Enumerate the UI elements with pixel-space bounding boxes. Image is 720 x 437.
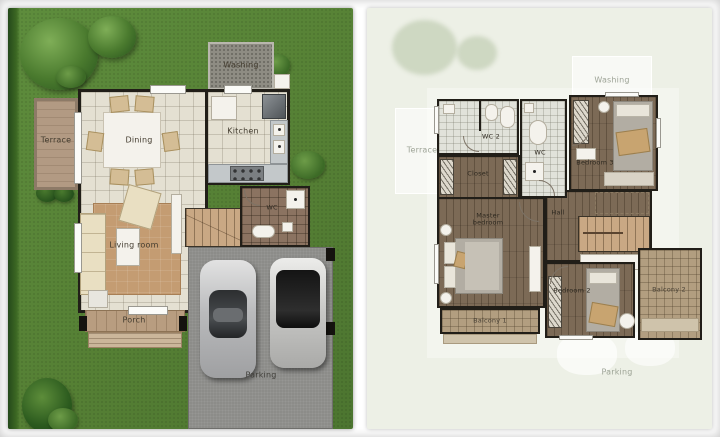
stairs-diagonal bbox=[185, 208, 241, 247]
sink-drain bbox=[278, 145, 281, 148]
stair-void bbox=[595, 192, 649, 214]
washing-label: Washing bbox=[223, 60, 258, 69]
master-side-table bbox=[440, 224, 452, 236]
master-side-table bbox=[440, 292, 452, 304]
kitchen-label: Kitchen bbox=[227, 126, 258, 135]
bush bbox=[56, 66, 86, 88]
living-room-label: Living room bbox=[109, 240, 158, 249]
balcony2-strip bbox=[641, 318, 699, 332]
window bbox=[150, 85, 186, 94]
back-step bbox=[274, 74, 290, 89]
wc-2f-label: WC bbox=[534, 149, 545, 156]
window bbox=[74, 223, 82, 273]
window bbox=[224, 85, 252, 94]
balcony1-steps bbox=[443, 334, 537, 344]
bedroom3-label: Bedroom 3 bbox=[576, 159, 613, 166]
car-silver-roofline bbox=[213, 308, 243, 322]
closet-wardrobe bbox=[440, 159, 454, 195]
window bbox=[434, 106, 439, 134]
parking-label: Parking bbox=[245, 370, 276, 379]
balcony1-label: Balcony 1 bbox=[473, 317, 507, 324]
chair bbox=[162, 131, 180, 152]
bedroom2-table bbox=[619, 313, 635, 329]
wc-label: WC bbox=[266, 204, 277, 211]
wc2-divider bbox=[479, 99, 481, 131]
master-label: Master bedroom bbox=[473, 213, 503, 228]
floorplan-image: Washing Terrace Kitchen Dining bbox=[0, 0, 720, 437]
chair bbox=[134, 168, 154, 186]
master-label-line2: bedroom bbox=[473, 219, 503, 227]
porch-steps bbox=[88, 332, 182, 348]
second-floor-plan: Washing Terrace Parking Hall WC 2 WC bbox=[367, 8, 712, 429]
chair bbox=[134, 95, 154, 113]
ghost-terrace-label: Terrace bbox=[407, 145, 438, 154]
ghost-tree bbox=[457, 36, 497, 70]
balcony2-label: Balcony 2 bbox=[652, 286, 686, 293]
closet-label: Closet bbox=[467, 170, 488, 177]
toilet bbox=[252, 225, 275, 238]
wc-drain bbox=[533, 170, 536, 173]
chair bbox=[109, 95, 130, 113]
wc2-basin bbox=[443, 104, 455, 114]
porch-label: Porch bbox=[122, 315, 145, 324]
window bbox=[128, 306, 168, 315]
closet-wardrobe bbox=[503, 159, 517, 195]
sink-drain bbox=[278, 128, 281, 131]
stove bbox=[230, 166, 264, 181]
window bbox=[74, 112, 82, 184]
master-sheet bbox=[465, 242, 499, 290]
window bbox=[559, 335, 593, 340]
chair bbox=[86, 131, 104, 152]
wc-basin bbox=[524, 103, 534, 113]
kitchen-island bbox=[211, 96, 237, 120]
ghost-washing-label: Washing bbox=[594, 75, 629, 84]
hall-label: Hall bbox=[551, 209, 564, 216]
fridge bbox=[262, 94, 286, 119]
car-black-top-glass bbox=[276, 270, 320, 328]
bedroom2-label: Bedroom 2 bbox=[553, 287, 590, 294]
stairs-up bbox=[578, 216, 650, 252]
bedroom3-rug bbox=[604, 172, 654, 186]
porch-pier bbox=[79, 316, 87, 331]
stairs-arrow bbox=[583, 232, 623, 234]
tree bbox=[88, 16, 136, 58]
window bbox=[605, 92, 639, 97]
ghost-tree bbox=[392, 20, 457, 75]
master-cabinet bbox=[529, 246, 541, 292]
window bbox=[656, 118, 661, 148]
bedroom2-blanket bbox=[588, 302, 618, 327]
shower-drain bbox=[294, 198, 297, 201]
bush bbox=[291, 151, 325, 179]
wc2-tub bbox=[500, 106, 515, 128]
wc-toilet bbox=[529, 120, 547, 145]
bedroom3-stool bbox=[598, 101, 610, 113]
hedge-left bbox=[8, 8, 20, 429]
fern bbox=[48, 408, 78, 429]
parking-pier bbox=[326, 322, 335, 335]
sofa bbox=[80, 213, 106, 295]
wc-sink bbox=[282, 222, 293, 232]
terrace-label: Terrace bbox=[41, 135, 72, 144]
side-table bbox=[88, 290, 108, 308]
parking-pier bbox=[326, 248, 335, 261]
bedroom3-blanket bbox=[615, 128, 650, 156]
wc2-label: WC 2 bbox=[482, 133, 500, 140]
wc2-toilet bbox=[485, 104, 498, 121]
master-pillow bbox=[444, 266, 456, 288]
bedroom2-pillow bbox=[589, 272, 617, 284]
tv-cabinet bbox=[171, 194, 182, 254]
ghost-parking-label: Parking bbox=[601, 367, 632, 376]
porch-pier bbox=[179, 316, 187, 331]
dining-label: Dining bbox=[125, 135, 152, 144]
bedroom3-pillow bbox=[616, 104, 650, 117]
window bbox=[434, 244, 439, 284]
first-floor-plan: Washing Terrace Kitchen Dining bbox=[8, 8, 353, 429]
chair bbox=[109, 168, 129, 185]
